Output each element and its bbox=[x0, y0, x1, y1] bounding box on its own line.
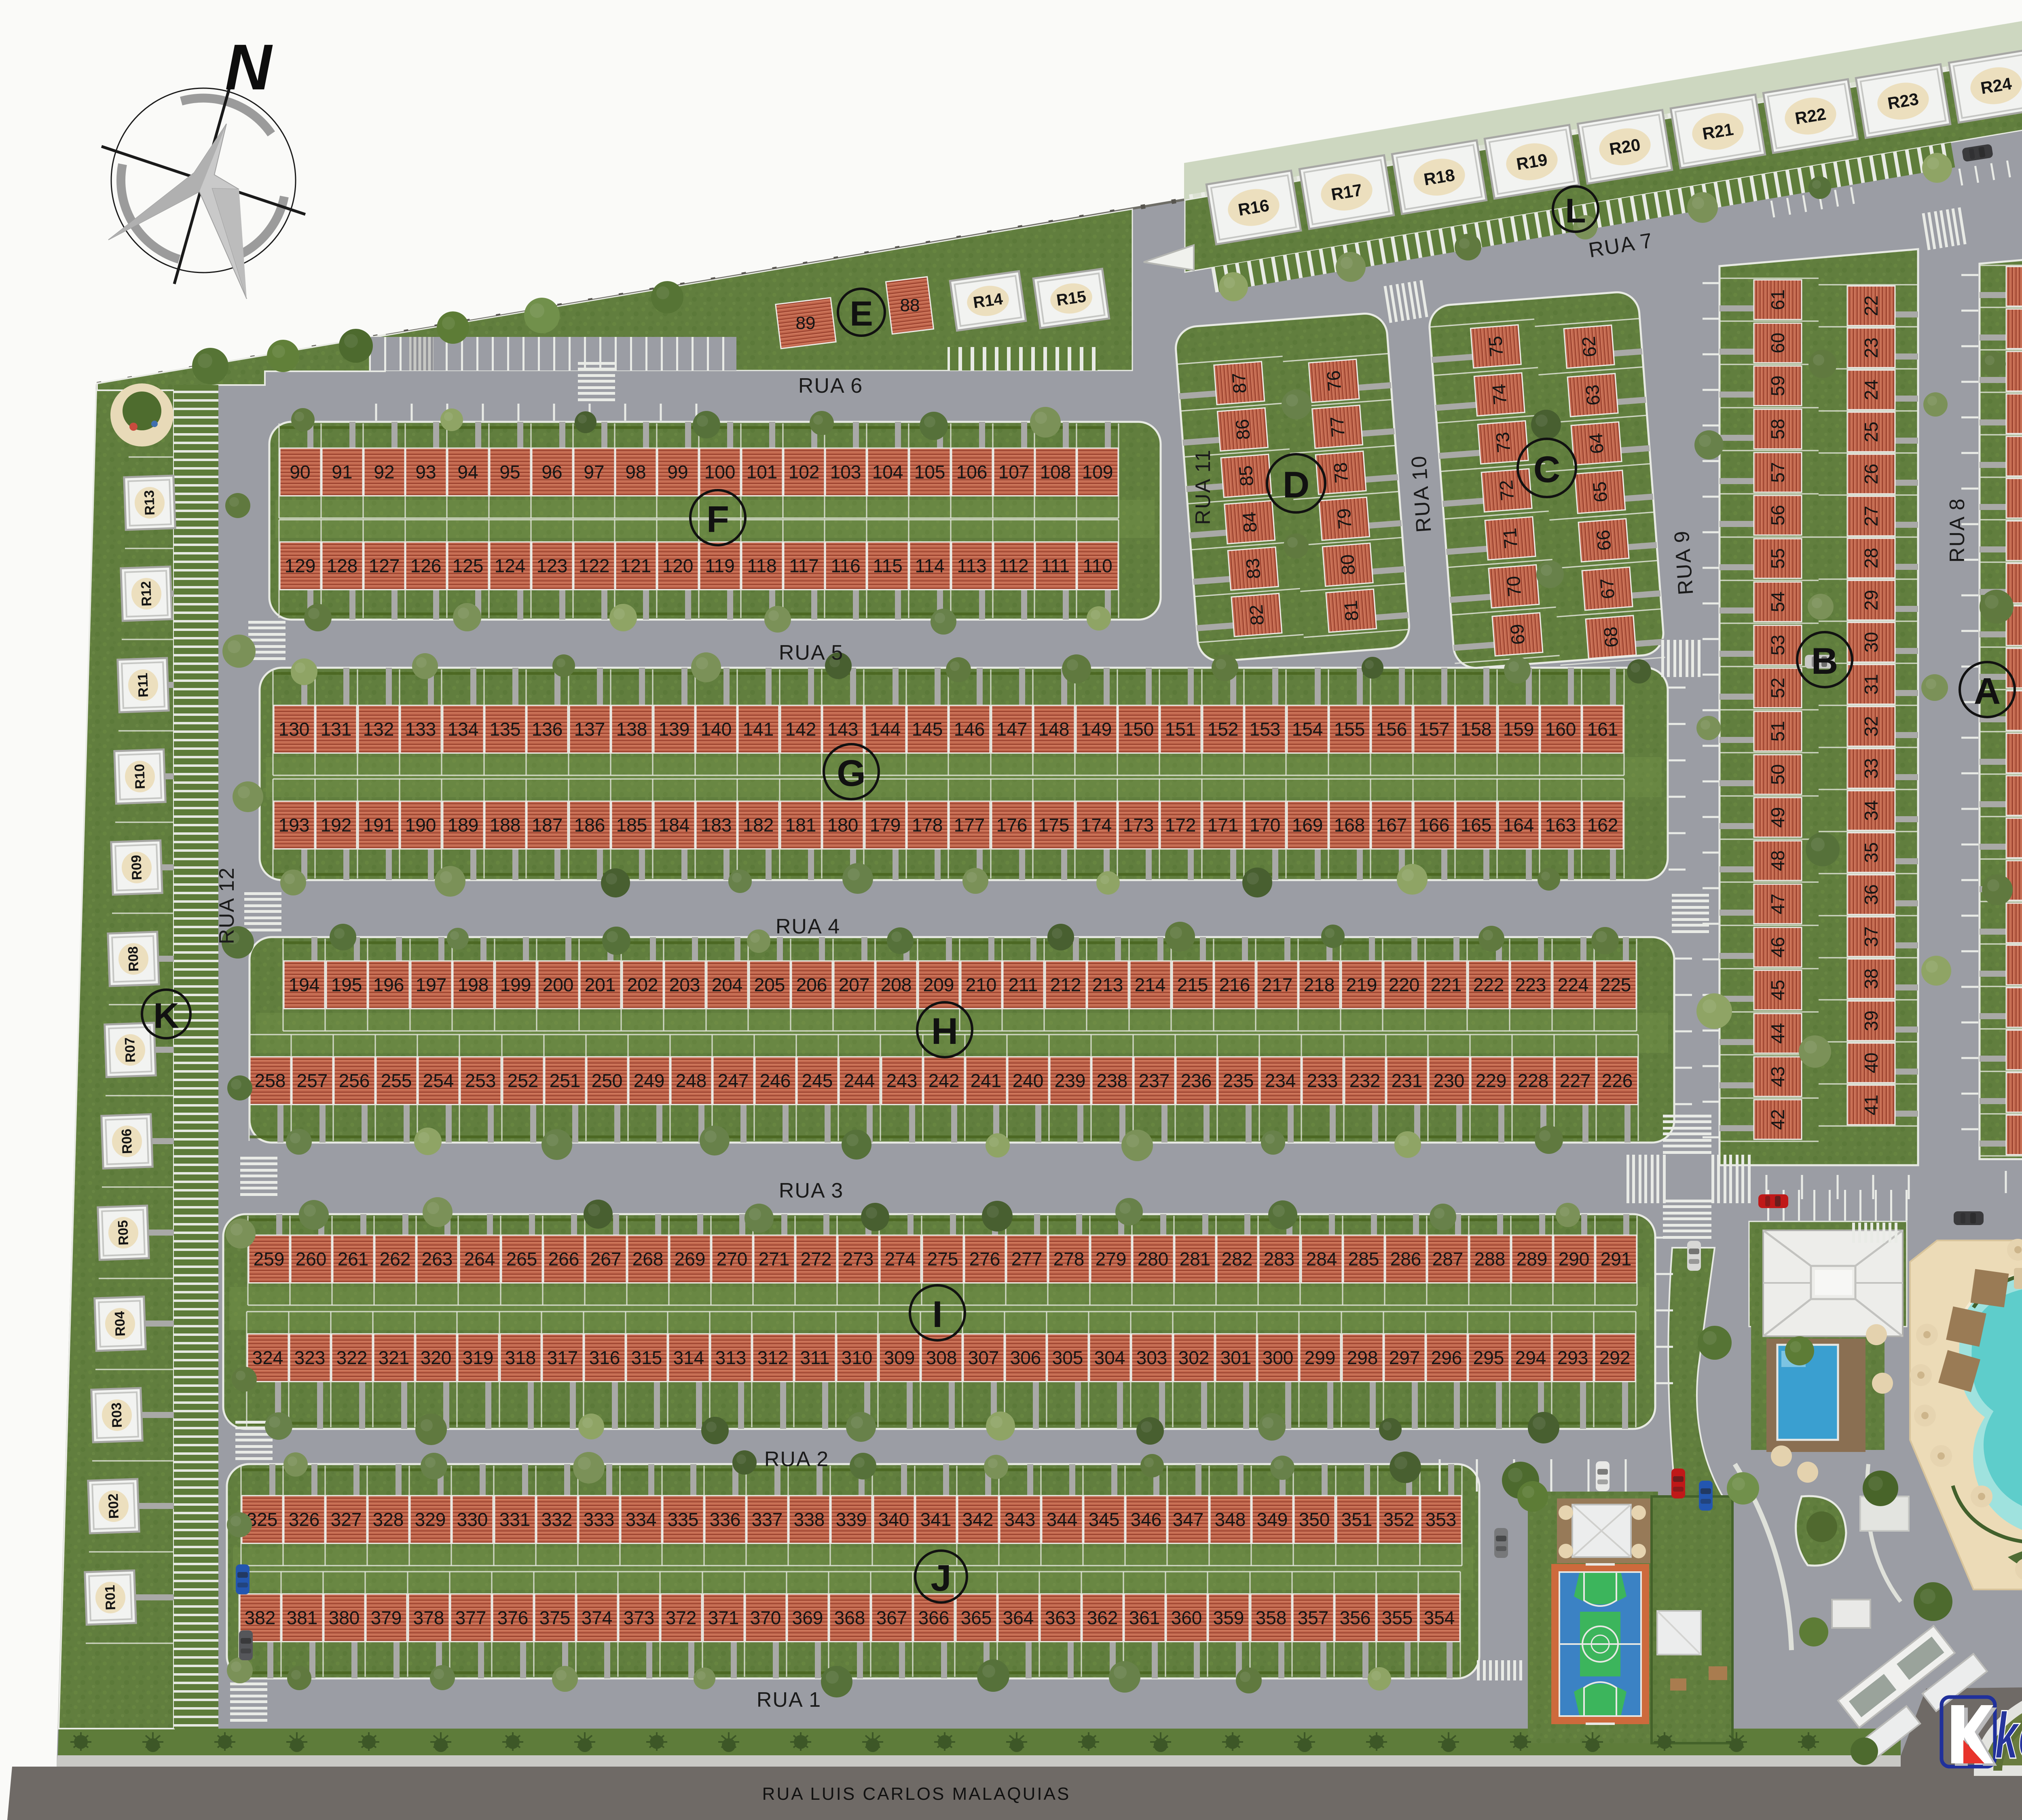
svg-text:E: E bbox=[850, 294, 873, 333]
svg-text:105: 105 bbox=[914, 461, 945, 483]
svg-text:219: 219 bbox=[1346, 974, 1377, 995]
svg-text:40: 40 bbox=[1861, 1052, 1882, 1073]
svg-text:136: 136 bbox=[532, 719, 563, 740]
svg-text:RUA 12: RUA 12 bbox=[215, 867, 239, 944]
svg-text:258: 258 bbox=[255, 1070, 286, 1091]
svg-text:104: 104 bbox=[872, 461, 903, 483]
svg-text:269: 269 bbox=[675, 1249, 706, 1270]
svg-text:250: 250 bbox=[592, 1070, 623, 1091]
svg-text:R05: R05 bbox=[115, 1220, 131, 1246]
svg-text:257: 257 bbox=[297, 1070, 328, 1091]
svg-text:162: 162 bbox=[1587, 815, 1618, 836]
svg-text:190: 190 bbox=[405, 815, 436, 836]
svg-text:324: 324 bbox=[252, 1347, 283, 1368]
svg-text:71: 71 bbox=[1499, 527, 1522, 550]
svg-text:39: 39 bbox=[1861, 1010, 1882, 1031]
svg-text:90: 90 bbox=[290, 461, 310, 483]
svg-text:314: 314 bbox=[673, 1347, 704, 1368]
svg-text:D: D bbox=[1283, 464, 1309, 506]
svg-text:338: 338 bbox=[794, 1509, 825, 1530]
svg-text:167: 167 bbox=[1376, 815, 1407, 836]
svg-text:82: 82 bbox=[1246, 604, 1268, 626]
svg-text:363: 363 bbox=[1045, 1607, 1076, 1628]
svg-text:227: 227 bbox=[1560, 1070, 1591, 1091]
svg-text:48: 48 bbox=[1767, 850, 1788, 871]
svg-text:357: 357 bbox=[1298, 1607, 1329, 1628]
svg-text:18: 18 bbox=[2020, 403, 2022, 424]
svg-text:172: 172 bbox=[1165, 815, 1196, 836]
svg-text:09: 09 bbox=[2020, 785, 2022, 806]
svg-text:81: 81 bbox=[1340, 600, 1362, 622]
svg-text:277: 277 bbox=[1011, 1249, 1043, 1270]
svg-text:163: 163 bbox=[1545, 815, 1576, 836]
svg-text:28: 28 bbox=[1861, 548, 1882, 568]
svg-text:266: 266 bbox=[548, 1249, 580, 1270]
svg-text:151: 151 bbox=[1165, 719, 1196, 740]
svg-text:77: 77 bbox=[1326, 416, 1349, 438]
svg-text:F: F bbox=[706, 499, 729, 540]
svg-text:30: 30 bbox=[1861, 632, 1882, 652]
svg-text:149: 149 bbox=[1081, 719, 1112, 740]
svg-text:102: 102 bbox=[789, 461, 820, 483]
svg-text:284: 284 bbox=[1306, 1249, 1337, 1270]
svg-text:94: 94 bbox=[457, 461, 478, 483]
svg-text:35: 35 bbox=[1861, 842, 1882, 863]
svg-text:05: 05 bbox=[2020, 954, 2022, 975]
svg-text:205: 205 bbox=[754, 974, 785, 995]
svg-text:J: J bbox=[931, 1558, 951, 1599]
svg-text:348: 348 bbox=[1215, 1509, 1246, 1530]
svg-text:270: 270 bbox=[717, 1249, 748, 1270]
svg-text:197: 197 bbox=[416, 974, 447, 995]
svg-text:278: 278 bbox=[1053, 1249, 1085, 1270]
svg-text:351: 351 bbox=[1341, 1509, 1373, 1530]
svg-text:273: 273 bbox=[843, 1249, 874, 1270]
svg-text:354: 354 bbox=[1424, 1607, 1455, 1628]
svg-text:69: 69 bbox=[1506, 623, 1529, 645]
svg-text:21: 21 bbox=[2020, 276, 2022, 296]
svg-text:44: 44 bbox=[1767, 1023, 1788, 1043]
svg-text:61: 61 bbox=[1767, 289, 1788, 310]
svg-text:321: 321 bbox=[379, 1347, 410, 1368]
svg-text:103: 103 bbox=[830, 461, 861, 483]
svg-text:346: 346 bbox=[1131, 1509, 1162, 1530]
svg-text:339: 339 bbox=[836, 1509, 867, 1530]
svg-text:182: 182 bbox=[743, 815, 774, 836]
svg-text:64: 64 bbox=[1585, 432, 1608, 455]
svg-text:26: 26 bbox=[1861, 463, 1882, 484]
svg-text:299: 299 bbox=[1305, 1347, 1336, 1368]
svg-text:301: 301 bbox=[1220, 1347, 1252, 1368]
svg-text:41: 41 bbox=[1861, 1094, 1882, 1115]
svg-text:187: 187 bbox=[532, 815, 563, 836]
svg-text:155: 155 bbox=[1334, 719, 1365, 740]
svg-text:377: 377 bbox=[455, 1607, 486, 1628]
svg-text:20: 20 bbox=[2020, 318, 2022, 339]
svg-text:286: 286 bbox=[1390, 1249, 1421, 1270]
svg-text:382: 382 bbox=[245, 1607, 276, 1628]
svg-text:305: 305 bbox=[1052, 1347, 1083, 1368]
svg-text:235: 235 bbox=[1223, 1070, 1254, 1091]
svg-text:179: 179 bbox=[870, 815, 901, 836]
svg-text:04: 04 bbox=[2020, 997, 2022, 1018]
svg-text:24: 24 bbox=[1861, 379, 1882, 400]
svg-text:263: 263 bbox=[422, 1249, 453, 1270]
svg-text:313: 313 bbox=[715, 1347, 747, 1368]
svg-text:306: 306 bbox=[1010, 1347, 1041, 1368]
svg-text:17: 17 bbox=[2020, 446, 2022, 466]
svg-text:G: G bbox=[837, 753, 866, 794]
svg-text:364: 364 bbox=[1003, 1607, 1034, 1628]
svg-text:240: 240 bbox=[1013, 1070, 1044, 1091]
svg-text:347: 347 bbox=[1173, 1509, 1204, 1530]
svg-text:328: 328 bbox=[373, 1509, 404, 1530]
svg-text:359: 359 bbox=[1213, 1607, 1244, 1628]
svg-text:310: 310 bbox=[842, 1347, 873, 1368]
svg-text:362: 362 bbox=[1087, 1607, 1118, 1628]
svg-text:93: 93 bbox=[415, 461, 436, 483]
svg-text:K: K bbox=[153, 996, 179, 1036]
svg-text:244: 244 bbox=[844, 1070, 875, 1091]
svg-text:11: 11 bbox=[2020, 701, 2022, 720]
svg-text:373: 373 bbox=[624, 1607, 655, 1628]
svg-text:60: 60 bbox=[1767, 332, 1788, 353]
svg-text:99: 99 bbox=[667, 461, 688, 483]
svg-text:147: 147 bbox=[996, 719, 1028, 740]
svg-text:R04: R04 bbox=[112, 1311, 128, 1337]
svg-text:295: 295 bbox=[1473, 1347, 1504, 1368]
svg-text:R12: R12 bbox=[138, 581, 154, 607]
svg-text:R01: R01 bbox=[102, 1585, 118, 1610]
svg-text:271: 271 bbox=[759, 1249, 790, 1270]
svg-text:281: 281 bbox=[1180, 1249, 1211, 1270]
svg-text:R11: R11 bbox=[135, 673, 151, 698]
svg-text:337: 337 bbox=[752, 1509, 783, 1530]
svg-text:370: 370 bbox=[750, 1607, 781, 1628]
svg-text:349: 349 bbox=[1257, 1509, 1288, 1530]
svg-text:212: 212 bbox=[1050, 974, 1081, 995]
svg-text:217: 217 bbox=[1262, 974, 1293, 995]
svg-text:160: 160 bbox=[1545, 719, 1576, 740]
svg-text:157: 157 bbox=[1419, 719, 1450, 740]
svg-text:262: 262 bbox=[380, 1249, 411, 1270]
svg-text:376: 376 bbox=[497, 1607, 529, 1628]
svg-text:274: 274 bbox=[885, 1249, 916, 1270]
svg-text:65: 65 bbox=[1589, 481, 1612, 503]
svg-text:168: 168 bbox=[1334, 815, 1365, 836]
svg-text:379: 379 bbox=[371, 1607, 402, 1628]
svg-text:375: 375 bbox=[539, 1607, 571, 1628]
svg-text:19: 19 bbox=[2020, 361, 2022, 381]
svg-text:53: 53 bbox=[1767, 635, 1788, 655]
svg-text:243: 243 bbox=[886, 1070, 918, 1091]
svg-text:15: 15 bbox=[2020, 530, 2022, 551]
svg-text:225: 225 bbox=[1600, 974, 1631, 995]
svg-text:307: 307 bbox=[968, 1347, 999, 1368]
svg-text:59: 59 bbox=[1767, 375, 1788, 396]
svg-text:237: 237 bbox=[1139, 1070, 1170, 1091]
svg-text:229: 229 bbox=[1476, 1070, 1507, 1091]
svg-text:336: 336 bbox=[710, 1509, 741, 1530]
svg-text:228: 228 bbox=[1518, 1070, 1549, 1091]
svg-text:RUA 6: RUA 6 bbox=[798, 374, 863, 398]
svg-text:180: 180 bbox=[827, 815, 859, 836]
svg-text:294: 294 bbox=[1515, 1347, 1546, 1368]
svg-text:335: 335 bbox=[668, 1509, 699, 1530]
svg-text:368: 368 bbox=[834, 1607, 865, 1628]
svg-text:355: 355 bbox=[1382, 1607, 1413, 1628]
svg-text:288: 288 bbox=[1474, 1249, 1506, 1270]
svg-text:320: 320 bbox=[421, 1347, 452, 1368]
svg-text:13: 13 bbox=[2020, 615, 2022, 636]
svg-text:92: 92 bbox=[374, 461, 394, 483]
svg-text:146: 146 bbox=[954, 719, 985, 740]
svg-text:256: 256 bbox=[339, 1070, 370, 1091]
svg-text:154: 154 bbox=[1292, 719, 1323, 740]
svg-text:296: 296 bbox=[1431, 1347, 1462, 1368]
svg-text:378: 378 bbox=[413, 1607, 444, 1628]
svg-text:126: 126 bbox=[410, 555, 442, 576]
svg-text:202: 202 bbox=[627, 974, 658, 995]
svg-text:169: 169 bbox=[1292, 815, 1323, 836]
svg-text:292: 292 bbox=[1599, 1347, 1631, 1368]
svg-text:331: 331 bbox=[499, 1509, 531, 1530]
svg-text:111: 111 bbox=[1041, 555, 1070, 576]
svg-text:203: 203 bbox=[669, 974, 700, 995]
svg-text:317: 317 bbox=[547, 1347, 578, 1368]
svg-text:200: 200 bbox=[543, 974, 574, 995]
svg-text:119: 119 bbox=[705, 555, 734, 576]
svg-text:166: 166 bbox=[1419, 815, 1450, 836]
svg-text:33: 33 bbox=[1861, 758, 1882, 779]
svg-text:112: 112 bbox=[999, 555, 1028, 576]
svg-text:50: 50 bbox=[1767, 764, 1788, 785]
svg-text:57: 57 bbox=[1767, 462, 1788, 483]
svg-text:241: 241 bbox=[971, 1070, 1002, 1091]
svg-text:127: 127 bbox=[369, 555, 400, 576]
svg-text:79: 79 bbox=[1333, 508, 1356, 530]
svg-text:72: 72 bbox=[1495, 479, 1518, 502]
svg-text:193: 193 bbox=[279, 815, 310, 836]
svg-text:85: 85 bbox=[1235, 465, 1258, 487]
svg-text:101: 101 bbox=[747, 461, 778, 483]
svg-text:83: 83 bbox=[1242, 557, 1265, 580]
svg-text:108: 108 bbox=[1040, 461, 1071, 483]
svg-text:356: 356 bbox=[1340, 1607, 1371, 1628]
svg-text:223: 223 bbox=[1515, 974, 1546, 995]
svg-text:117: 117 bbox=[789, 555, 819, 576]
svg-text:134: 134 bbox=[448, 719, 479, 740]
svg-text:218: 218 bbox=[1304, 974, 1335, 995]
svg-text:22: 22 bbox=[1861, 295, 1882, 316]
svg-text:01: 01 bbox=[2020, 1124, 2022, 1145]
svg-text:276: 276 bbox=[969, 1249, 1000, 1270]
svg-text:315: 315 bbox=[631, 1347, 662, 1368]
svg-text:140: 140 bbox=[701, 719, 732, 740]
svg-text:RUA 11: RUA 11 bbox=[1191, 449, 1215, 525]
svg-text:R03: R03 bbox=[109, 1402, 125, 1428]
svg-text:254: 254 bbox=[423, 1070, 454, 1091]
svg-text:253: 253 bbox=[465, 1070, 496, 1091]
svg-text:139: 139 bbox=[659, 719, 690, 740]
svg-text:165: 165 bbox=[1461, 815, 1492, 836]
svg-text:188: 188 bbox=[490, 815, 521, 836]
svg-text:291: 291 bbox=[1601, 1249, 1632, 1270]
svg-text:RUA 8: RUA 8 bbox=[1946, 498, 1969, 563]
svg-text:323: 323 bbox=[294, 1347, 326, 1368]
svg-text:145: 145 bbox=[912, 719, 943, 740]
svg-text:R08: R08 bbox=[125, 946, 142, 972]
svg-text:304: 304 bbox=[1094, 1347, 1125, 1368]
svg-text:272: 272 bbox=[801, 1249, 832, 1270]
svg-text:367: 367 bbox=[876, 1607, 907, 1628]
svg-text:45: 45 bbox=[1767, 980, 1788, 1000]
svg-text:195: 195 bbox=[331, 974, 362, 995]
svg-text:27: 27 bbox=[1861, 506, 1882, 526]
svg-text:343: 343 bbox=[1005, 1509, 1036, 1530]
svg-text:84: 84 bbox=[1238, 511, 1261, 533]
svg-text:224: 224 bbox=[1558, 974, 1589, 995]
svg-text:344: 344 bbox=[1047, 1509, 1078, 1530]
svg-text:360: 360 bbox=[1171, 1607, 1202, 1628]
svg-text:88: 88 bbox=[900, 296, 920, 315]
svg-text:152: 152 bbox=[1208, 719, 1239, 740]
svg-text:220: 220 bbox=[1389, 974, 1420, 995]
svg-text:56: 56 bbox=[1767, 505, 1788, 525]
svg-text:236: 236 bbox=[1181, 1070, 1212, 1091]
svg-text:R07: R07 bbox=[122, 1037, 138, 1063]
svg-text:74: 74 bbox=[1488, 383, 1511, 406]
svg-text:189: 189 bbox=[448, 815, 479, 836]
svg-text:RUA 1: RUA 1 bbox=[757, 1688, 821, 1712]
svg-text:247: 247 bbox=[718, 1070, 749, 1091]
svg-text:100: 100 bbox=[704, 461, 736, 483]
svg-text:297: 297 bbox=[1389, 1347, 1420, 1368]
svg-text:239: 239 bbox=[1055, 1070, 1086, 1091]
svg-text:47: 47 bbox=[1767, 893, 1788, 914]
svg-text:135: 135 bbox=[490, 719, 521, 740]
svg-text:124: 124 bbox=[495, 555, 526, 576]
svg-text:246: 246 bbox=[760, 1070, 791, 1091]
svg-text:333: 333 bbox=[584, 1509, 615, 1530]
svg-text:261: 261 bbox=[338, 1249, 369, 1270]
svg-text:329: 329 bbox=[415, 1509, 446, 1530]
svg-text:06: 06 bbox=[2020, 912, 2022, 933]
svg-text:I: I bbox=[932, 1294, 943, 1335]
svg-text:63: 63 bbox=[1582, 384, 1604, 406]
svg-text:N: N bbox=[225, 31, 273, 103]
svg-text:268: 268 bbox=[632, 1249, 664, 1270]
svg-text:RUA 5: RUA 5 bbox=[779, 641, 844, 665]
svg-text:137: 137 bbox=[574, 719, 605, 740]
svg-text:216: 216 bbox=[1219, 974, 1250, 995]
svg-text:131: 131 bbox=[321, 719, 352, 740]
svg-text:209: 209 bbox=[923, 974, 954, 995]
svg-text:215: 215 bbox=[1177, 974, 1208, 995]
svg-text:183: 183 bbox=[701, 815, 732, 836]
svg-text:318: 318 bbox=[505, 1347, 536, 1368]
svg-text:95: 95 bbox=[499, 461, 520, 483]
svg-text:249: 249 bbox=[634, 1070, 665, 1091]
svg-text:184: 184 bbox=[659, 815, 690, 836]
svg-text:173: 173 bbox=[1123, 815, 1154, 836]
svg-text:109: 109 bbox=[1082, 461, 1113, 483]
svg-text:365: 365 bbox=[961, 1607, 992, 1628]
svg-text:RUA 2: RUA 2 bbox=[764, 1448, 829, 1471]
svg-text:52: 52 bbox=[1767, 677, 1788, 698]
svg-text:98: 98 bbox=[625, 461, 646, 483]
svg-text:143: 143 bbox=[827, 719, 859, 740]
svg-text:121: 121 bbox=[620, 555, 651, 576]
svg-text:285: 285 bbox=[1348, 1249, 1379, 1270]
svg-text:308: 308 bbox=[926, 1347, 957, 1368]
svg-text:49: 49 bbox=[1767, 807, 1788, 827]
svg-text:312: 312 bbox=[757, 1347, 789, 1368]
svg-text:174: 174 bbox=[1081, 815, 1112, 836]
svg-text:255: 255 bbox=[381, 1070, 412, 1091]
svg-text:03: 03 bbox=[2020, 1039, 2022, 1060]
svg-text:144: 144 bbox=[870, 719, 901, 740]
svg-text:283: 283 bbox=[1264, 1249, 1295, 1270]
svg-text:238: 238 bbox=[1097, 1070, 1128, 1091]
svg-text:R09: R09 bbox=[129, 855, 145, 880]
svg-text:199: 199 bbox=[500, 974, 531, 995]
svg-text:287: 287 bbox=[1432, 1249, 1464, 1270]
svg-text:RUA 4: RUA 4 bbox=[776, 915, 840, 938]
svg-text:L: L bbox=[1565, 192, 1586, 230]
svg-text:177: 177 bbox=[954, 815, 985, 836]
svg-text:114: 114 bbox=[915, 555, 944, 576]
svg-text:206: 206 bbox=[796, 974, 827, 995]
svg-text:342: 342 bbox=[962, 1509, 994, 1530]
svg-text:192: 192 bbox=[321, 815, 352, 836]
svg-text:120: 120 bbox=[662, 555, 694, 576]
svg-text:164: 164 bbox=[1503, 815, 1534, 836]
svg-text:371: 371 bbox=[708, 1607, 739, 1628]
svg-text:259: 259 bbox=[254, 1249, 285, 1270]
svg-text:334: 334 bbox=[626, 1509, 657, 1530]
svg-text:R13: R13 bbox=[142, 490, 158, 516]
svg-text:107: 107 bbox=[998, 461, 1030, 483]
svg-text:148: 148 bbox=[1038, 719, 1070, 740]
svg-text:133: 133 bbox=[405, 719, 436, 740]
svg-text:251: 251 bbox=[550, 1070, 581, 1091]
svg-text:369: 369 bbox=[792, 1607, 823, 1628]
svg-text:302: 302 bbox=[1178, 1347, 1210, 1368]
svg-text:222: 222 bbox=[1473, 974, 1504, 995]
svg-text:R02: R02 bbox=[106, 1493, 122, 1519]
svg-text:309: 309 bbox=[884, 1347, 915, 1368]
svg-text:H: H bbox=[931, 1011, 958, 1052]
svg-text:RUA LUIS CARLOS MALAQUIAS: RUA LUIS CARLOS MALAQUIAS bbox=[762, 1784, 1071, 1804]
svg-text:194: 194 bbox=[289, 974, 320, 995]
svg-text:221: 221 bbox=[1431, 974, 1462, 995]
svg-text:konquiste: konquiste bbox=[1995, 1699, 2022, 1772]
svg-text:186: 186 bbox=[574, 815, 605, 836]
svg-text:129: 129 bbox=[285, 555, 316, 576]
svg-text:67: 67 bbox=[1596, 578, 1619, 600]
svg-text:176: 176 bbox=[996, 815, 1028, 836]
svg-text:RUA 9: RUA 9 bbox=[1670, 529, 1698, 596]
svg-text:264: 264 bbox=[464, 1249, 495, 1270]
svg-text:75: 75 bbox=[1485, 335, 1507, 358]
svg-text:70: 70 bbox=[1503, 575, 1525, 597]
svg-text:381: 381 bbox=[287, 1607, 318, 1628]
svg-text:B: B bbox=[1811, 641, 1838, 682]
svg-text:159: 159 bbox=[1503, 719, 1534, 740]
svg-text:87: 87 bbox=[1228, 372, 1250, 394]
svg-text:12: 12 bbox=[2020, 658, 2022, 678]
